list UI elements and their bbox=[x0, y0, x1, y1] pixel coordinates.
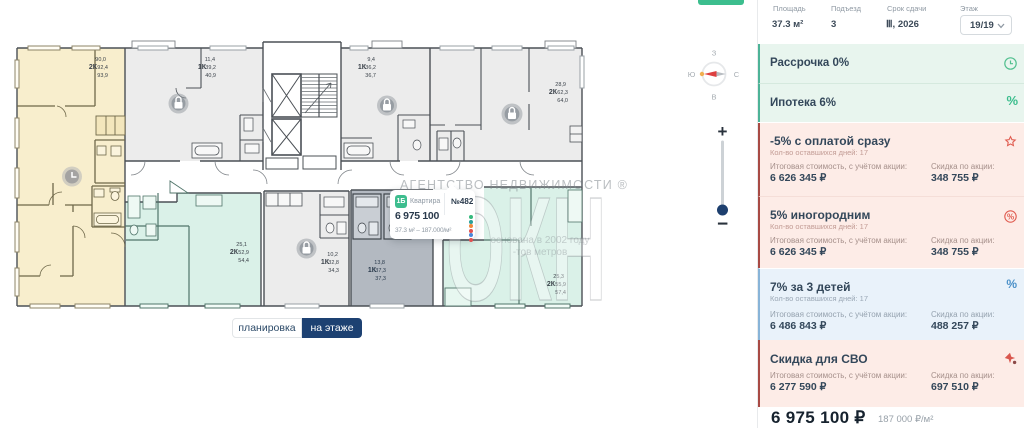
svg-text:92,4: 92,4 bbox=[97, 65, 108, 71]
svg-text:-тов метров: -тов метров bbox=[513, 247, 568, 258]
svg-text:28,9: 28,9 bbox=[555, 82, 566, 88]
svg-text:25,1: 25,1 bbox=[236, 242, 247, 248]
svg-text:%: % bbox=[1007, 212, 1014, 221]
svg-text:9,4: 9,4 bbox=[367, 57, 375, 63]
svg-text:−: − bbox=[717, 214, 728, 235]
svg-text:32,8: 32,8 bbox=[328, 260, 339, 266]
svg-text:В: В bbox=[711, 93, 716, 102]
svg-text:основана в 2002 году: основана в 2002 году bbox=[491, 235, 590, 246]
svg-text:62,3: 62,3 bbox=[557, 90, 568, 96]
svg-text:36,7: 36,7 bbox=[365, 73, 376, 79]
svg-text:52,9: 52,9 bbox=[238, 250, 249, 256]
svg-text:36,2: 36,2 bbox=[365, 65, 376, 71]
svg-text:С: С bbox=[734, 70, 740, 79]
svg-text:13,8: 13,8 bbox=[374, 260, 385, 266]
svg-text:З: З bbox=[712, 49, 717, 58]
svg-text:11,4: 11,4 bbox=[205, 57, 215, 63]
svg-text:54,4: 54,4 bbox=[238, 258, 249, 264]
svg-text:90,0: 90,0 bbox=[95, 57, 106, 63]
svg-text:10,2: 10,2 bbox=[327, 252, 338, 258]
svg-text:40,9: 40,9 bbox=[205, 73, 216, 79]
svg-text:+: + bbox=[718, 122, 728, 141]
svg-text:34,3: 34,3 bbox=[328, 268, 339, 274]
svg-text:Ю: Ю bbox=[688, 70, 696, 79]
svg-text:39,2: 39,2 bbox=[205, 65, 216, 71]
svg-text:64,0: 64,0 bbox=[557, 98, 568, 104]
svg-text:37,3: 37,3 bbox=[375, 276, 386, 282]
svg-text:93,9: 93,9 bbox=[97, 73, 108, 79]
svg-text:37,3: 37,3 bbox=[375, 268, 386, 274]
